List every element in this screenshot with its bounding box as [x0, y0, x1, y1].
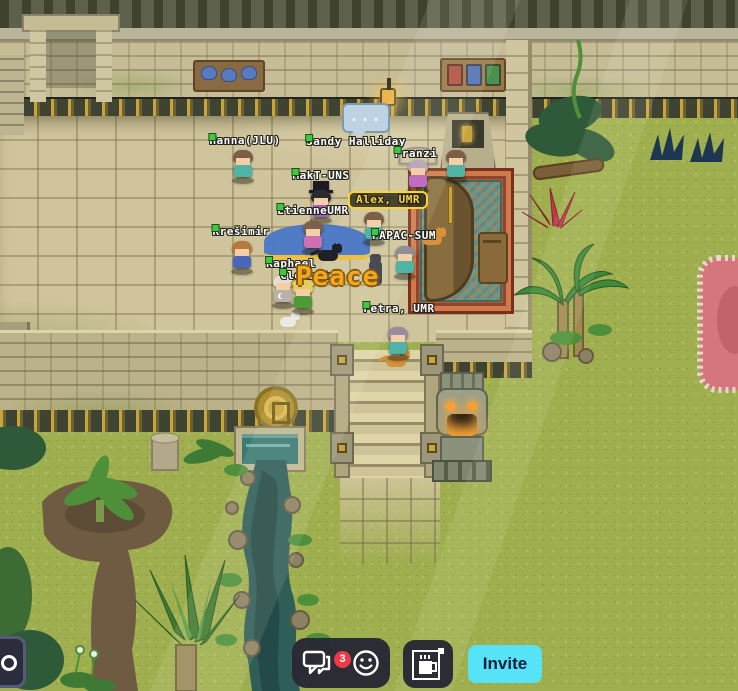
dog [280, 312, 306, 342]
player-sprite[interactable] [231, 150, 255, 182]
chat-unread-badge: 3 [334, 651, 351, 668]
sprite-body [447, 165, 465, 177]
sprite-body [274, 290, 292, 302]
player-name-label: MakT-UNS [293, 169, 350, 182]
player-sprite[interactable] [301, 221, 325, 253]
player-name-text: EtienneUMR [277, 204, 348, 217]
partial-button[interactable] [0, 636, 26, 688]
sprite-body [389, 342, 407, 354]
invite-button[interactable]: Invite [468, 645, 542, 683]
sprite-body [233, 256, 251, 268]
online-status-dot [395, 147, 401, 153]
sprite-body [396, 261, 414, 273]
sprite-body [304, 236, 322, 248]
player-sprite[interactable] [406, 160, 430, 192]
player-name-label: Alex, UMR [348, 191, 428, 209]
emoji-button[interactable] [352, 649, 380, 677]
online-status-dot [363, 302, 369, 308]
chat-bubbles-icon [302, 649, 332, 677]
player-name-label: EtienneUMR [277, 204, 348, 217]
partial-circle-glyph [1, 655, 17, 671]
online-status-dot [372, 229, 378, 235]
online-status-dot [306, 135, 312, 141]
sprite-shadow [387, 354, 409, 361]
smiley-icon [352, 649, 380, 677]
player-sprite[interactable] [386, 327, 410, 359]
player-name-label: Krešimir [213, 225, 270, 238]
online-status-dot [293, 169, 299, 175]
sprite-shadow [302, 248, 324, 255]
chat-emoji-toolbar: 3 [292, 638, 390, 688]
sprite-body [409, 175, 427, 187]
online-status-dot [277, 204, 283, 210]
player-name-text: Franzi [395, 147, 438, 160]
sprite-shadow [232, 177, 254, 184]
coffee-break-button[interactable] [403, 640, 453, 688]
online-status-dot [266, 257, 272, 263]
sprite-body [294, 296, 312, 308]
player-name-text: PAPAC-SUM [372, 229, 436, 242]
player-name-text: MakT-UNS [293, 169, 350, 182]
player-sprite[interactable] [393, 246, 417, 278]
sprite-body [234, 165, 252, 177]
player-sprite[interactable] [444, 150, 468, 182]
animal-part [332, 244, 342, 253]
player-name-label: Petra, UMR [363, 302, 434, 315]
player-name-label: Hanna(JLU) [209, 134, 280, 147]
game-viewport: Hanna(JLU)Sandy HallidayFranziMakT-UNSAl… [0, 0, 738, 691]
animal-part [436, 228, 446, 237]
sprite-shadow [292, 308, 314, 315]
sprite-shadow [394, 273, 416, 280]
player-name-text: Hanna(JLU) [209, 134, 280, 147]
player-name-label: Franzi [395, 147, 438, 160]
player-name-text: Krešimir [213, 225, 270, 238]
player-name-text: Petra, UMR [363, 302, 434, 315]
online-status-dot [213, 225, 219, 231]
online-status-dot [209, 134, 215, 140]
player-sprite[interactable] [230, 241, 254, 273]
typing-indicator-bubble: ... [342, 103, 390, 133]
player-name-label: PAPAC-SUM [372, 229, 436, 242]
peace-floor-text: Peace [296, 262, 379, 292]
coffee-mug-icon [411, 647, 445, 681]
player-name-text: Alex, UMR [356, 193, 420, 206]
sprite-shadow [445, 177, 467, 184]
sprite-shadow [231, 268, 253, 275]
chat-button[interactable]: 3 [302, 649, 332, 677]
online-status-dot [280, 269, 286, 275]
